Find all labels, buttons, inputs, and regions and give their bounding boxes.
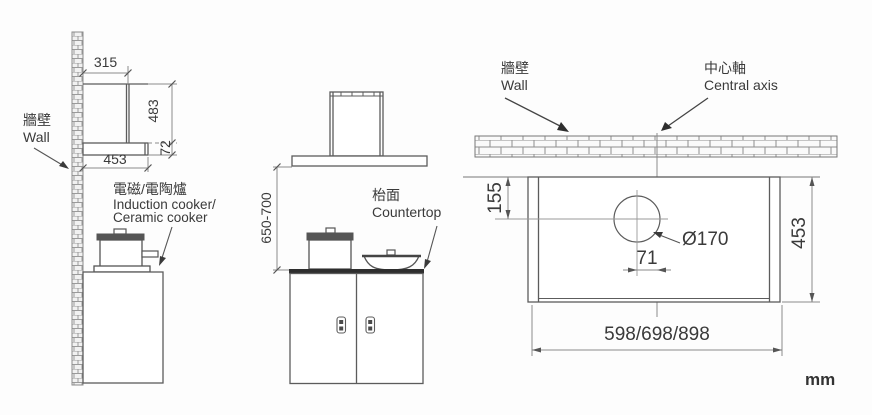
front-view [273,92,437,384]
countertop-leader [424,226,437,269]
dim-top-hole-offset-y: 155 [485,182,507,214]
pot-icon-side [97,229,158,268]
wok-icon [362,250,421,270]
dim-top-depth: 453 [789,217,811,249]
top-wall-label-en: Wall [501,78,528,93]
cooker-label-en2: Ceramic cooker [113,211,208,226]
side-wall-label-en: Wall [23,130,50,145]
dim-top-width: 598/698/898 [592,325,722,346]
dim-front-clearance: 650-700 [258,192,274,243]
countertop-label-zh: 枱面 [372,188,400,203]
front-cabinet [290,274,423,384]
pot-icon-front [307,228,353,269]
side-wall-leader [34,148,69,169]
side-wall-hatch [72,32,83,385]
dim-side-depth: 453 [84,152,146,167]
front-hood-body [292,156,427,166]
top-view [463,98,837,356]
front-chimney [330,92,383,156]
dim-top-hole-offset-x: 71 [630,249,664,270]
countertop-band [289,269,424,274]
dim-side-top-depth: 315 [83,55,128,70]
top-hood-outline [463,177,820,302]
central-axis-label-en: Central axis [704,78,778,93]
central-axis-label-zh: 中心軸 [704,61,746,76]
cooker-slab [94,266,150,272]
dim-side-height: 483 [145,99,161,122]
top-wall-label-zh: 牆壁 [501,61,529,76]
dim-top-hole-dia: Ø170 [682,230,728,251]
top-wall-hatch [475,136,837,157]
cooker-label-zh: 電磁/電陶爐 [113,182,187,197]
dim-650-700-lines [273,164,292,274]
countertop-label-en: Countertop [372,205,441,220]
side-hood-outline [83,84,148,155]
cooker-leader [159,227,172,266]
top-wall-leader [505,98,569,132]
side-wall-label-zh: 牆壁 [23,113,51,128]
installation-diagram: 315 483 72 453 牆壁 Wall 電磁/電陶爐 Induction … [0,0,872,415]
central-axis-leader [661,98,708,131]
side-cabinet [83,272,163,383]
dim-side-plate-height: 72 [157,140,173,156]
unit-label: mm [805,371,835,389]
